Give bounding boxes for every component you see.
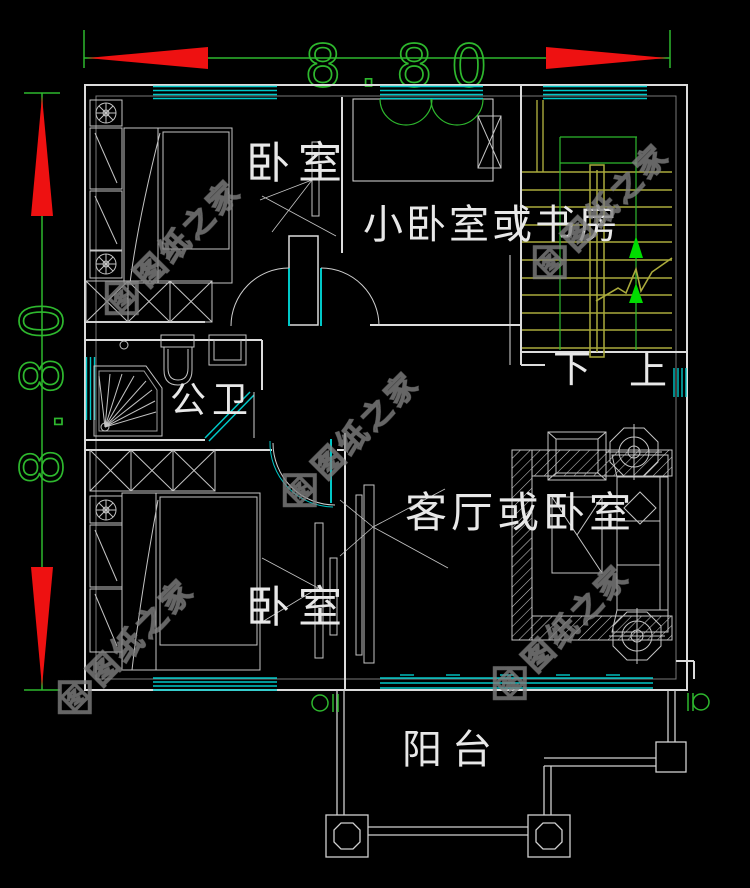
toilet-icon xyxy=(161,335,194,385)
up-arrow-icon xyxy=(31,96,53,216)
sofa xyxy=(612,455,668,632)
balcony-column xyxy=(528,815,570,857)
left-dimension: 8.80 xyxy=(8,93,76,690)
floor-plan-page: 8.80 8.80 xyxy=(0,0,750,888)
balcony-column xyxy=(326,815,368,857)
stair-down-label: 下 xyxy=(553,347,591,391)
left-arrow-icon xyxy=(87,47,208,69)
watermark-text: 图纸之家 xyxy=(306,365,427,486)
balcony-structure xyxy=(312,690,709,857)
window-top-left xyxy=(153,87,277,99)
rug-hatch xyxy=(532,450,672,476)
rug-hatch xyxy=(512,450,532,640)
room-label-balcony: 阳台 xyxy=(402,727,502,773)
top-dimension: 8.80 xyxy=(84,30,670,100)
right-arrow-icon xyxy=(546,47,667,69)
stair-up-arrow-icon xyxy=(629,236,643,258)
down-arrow-icon xyxy=(31,567,53,687)
living-room-furniture xyxy=(340,424,672,664)
tv-panel xyxy=(364,485,374,663)
shower-icon xyxy=(94,366,162,436)
floor-drain-icon xyxy=(120,341,128,349)
stair-up-arrow-icon xyxy=(629,283,643,303)
room-label-bathroom: 公卫 xyxy=(170,380,254,421)
door-study xyxy=(321,268,379,326)
room-label-bedroom-bottom: 卧室 xyxy=(246,582,350,633)
sink-icon xyxy=(209,335,246,365)
stair-up-label: 上 xyxy=(629,349,667,393)
ceiling-lamp-icon xyxy=(90,496,122,523)
ceiling-lamp-icon xyxy=(90,251,122,278)
window-top-right xyxy=(543,87,647,99)
watermark-text: 图纸之家 xyxy=(81,572,202,693)
rain-pipe-icon xyxy=(312,694,338,712)
study-furniture xyxy=(478,116,501,168)
window-left-bath xyxy=(87,357,95,420)
floor-plan-drawing: 8.80 8.80 xyxy=(0,0,750,888)
tv-panel xyxy=(356,495,362,655)
room-label-living: 客厅或卧室 xyxy=(405,488,635,537)
ceiling-lamp-icon xyxy=(90,100,122,126)
wardrobe-lower xyxy=(90,450,215,491)
room-label-bedroom-top: 卧室 xyxy=(246,138,350,189)
left-dimension-value: 8.80 xyxy=(8,284,76,485)
rain-pipe-icon xyxy=(688,693,709,711)
window-bottom-bedroom xyxy=(153,678,277,690)
balcony-post xyxy=(656,742,686,772)
watermark: 图 图纸之家 xyxy=(45,568,204,727)
door-bedroom-top xyxy=(231,268,289,326)
